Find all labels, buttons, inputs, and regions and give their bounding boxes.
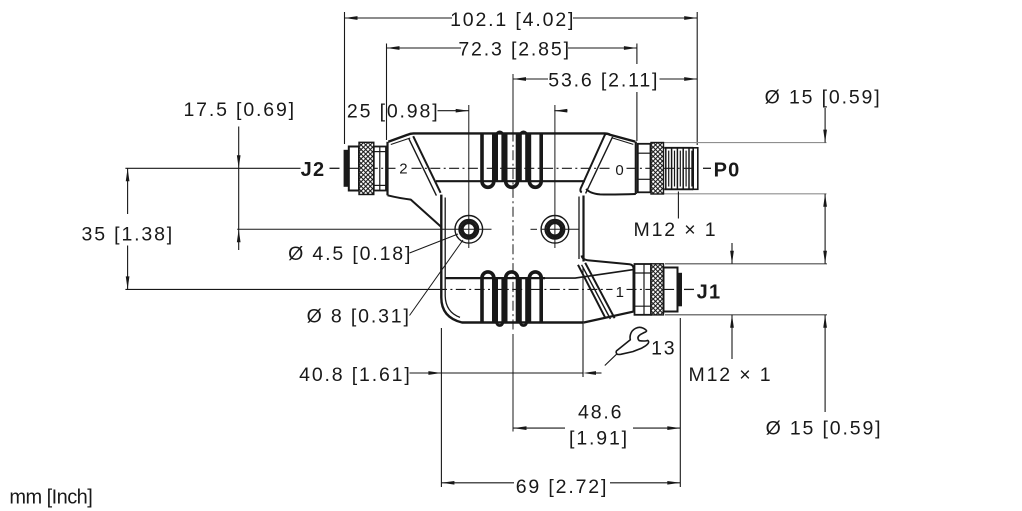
svg-text:72.3 [2.85]: 72.3 [2.85]: [458, 39, 571, 61]
svg-text:Ø 4.5 [0.18]: Ø 4.5 [0.18]: [288, 243, 412, 265]
svg-text:P0: P0: [714, 160, 741, 182]
svg-text:M12 × 1: M12 × 1: [689, 364, 773, 386]
svg-text:Ø 8 [0.31]: Ø 8 [0.31]: [307, 305, 411, 327]
svg-text:48.6: 48.6: [578, 402, 623, 424]
svg-text:69 [2.72]: 69 [2.72]: [516, 476, 609, 498]
svg-text:40.8 [1.61]: 40.8 [1.61]: [299, 364, 412, 386]
svg-text:0: 0: [615, 162, 623, 179]
svg-text:Ø 15 [0.59]: Ø 15 [0.59]: [765, 86, 882, 108]
svg-text:35 [1.38]: 35 [1.38]: [82, 223, 175, 245]
svg-text:M12 × 1: M12 × 1: [634, 219, 718, 241]
svg-text:Ø 15 [0.59]: Ø 15 [0.59]: [766, 417, 883, 439]
svg-text:mm [Inch]: mm [Inch]: [9, 487, 92, 509]
svg-text:13: 13: [651, 337, 676, 359]
svg-text:1: 1: [616, 284, 624, 301]
svg-text:J2: J2: [301, 159, 326, 181]
svg-text:J1: J1: [697, 281, 722, 303]
svg-text:2: 2: [399, 161, 407, 178]
svg-text:17.5 [0.69]: 17.5 [0.69]: [183, 99, 296, 121]
svg-text:25 [0.98]: 25 [0.98]: [347, 101, 440, 123]
svg-text:102.1 [4.02]: 102.1 [4.02]: [450, 9, 575, 31]
svg-text:53.6 [2.11]: 53.6 [2.11]: [548, 69, 659, 91]
svg-text:[1.91]: [1.91]: [569, 427, 629, 449]
